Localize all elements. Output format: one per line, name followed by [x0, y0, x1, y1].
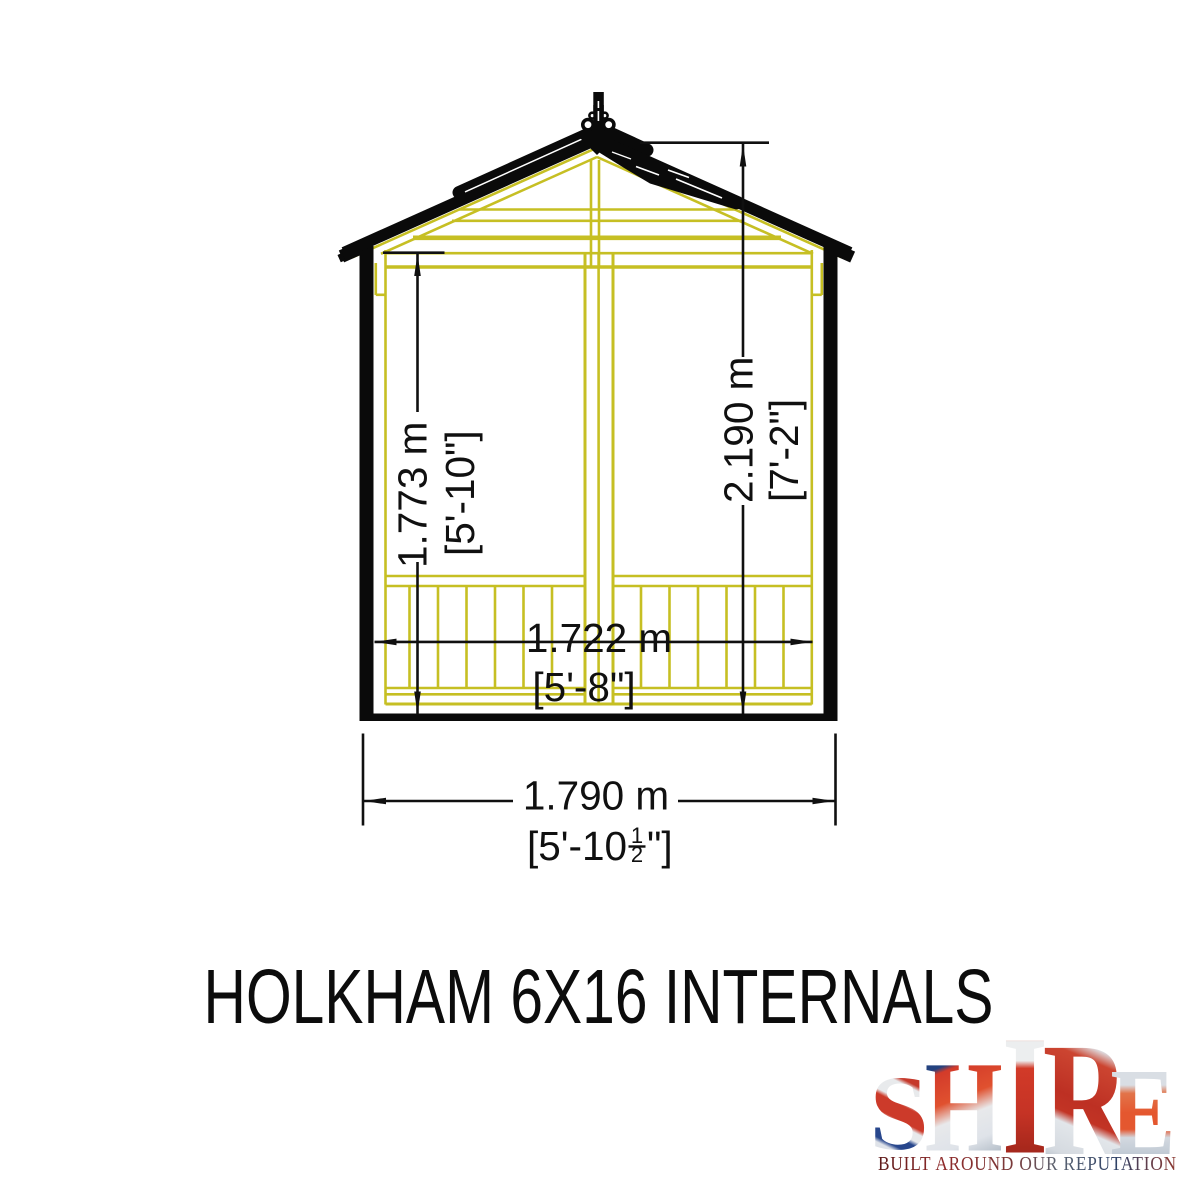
svg-text:HOLKHAM 6X16 INTERNALS: HOLKHAM 6X16 INTERNALS	[204, 953, 994, 1040]
svg-text:"]: "]	[647, 823, 673, 869]
svg-text:[5'-10"]: [5'-10"]	[437, 430, 483, 556]
svg-text:2.190 m: 2.190 m	[716, 357, 762, 503]
svg-text:1.722 m: 1.722 m	[526, 615, 672, 661]
svg-text:[7'-2"]: [7'-2"]	[761, 399, 807, 502]
svg-text:1.790 m: 1.790 m	[523, 773, 669, 819]
svg-text:1.773 m: 1.773 m	[390, 422, 436, 568]
svg-text:[5'-8"]: [5'-8"]	[532, 664, 635, 710]
svg-text:BUILT AROUND OUR REPUTATION: BUILT AROUND OUR REPUTATION	[878, 1153, 1177, 1175]
svg-text:[5'-10: [5'-10	[527, 823, 627, 869]
